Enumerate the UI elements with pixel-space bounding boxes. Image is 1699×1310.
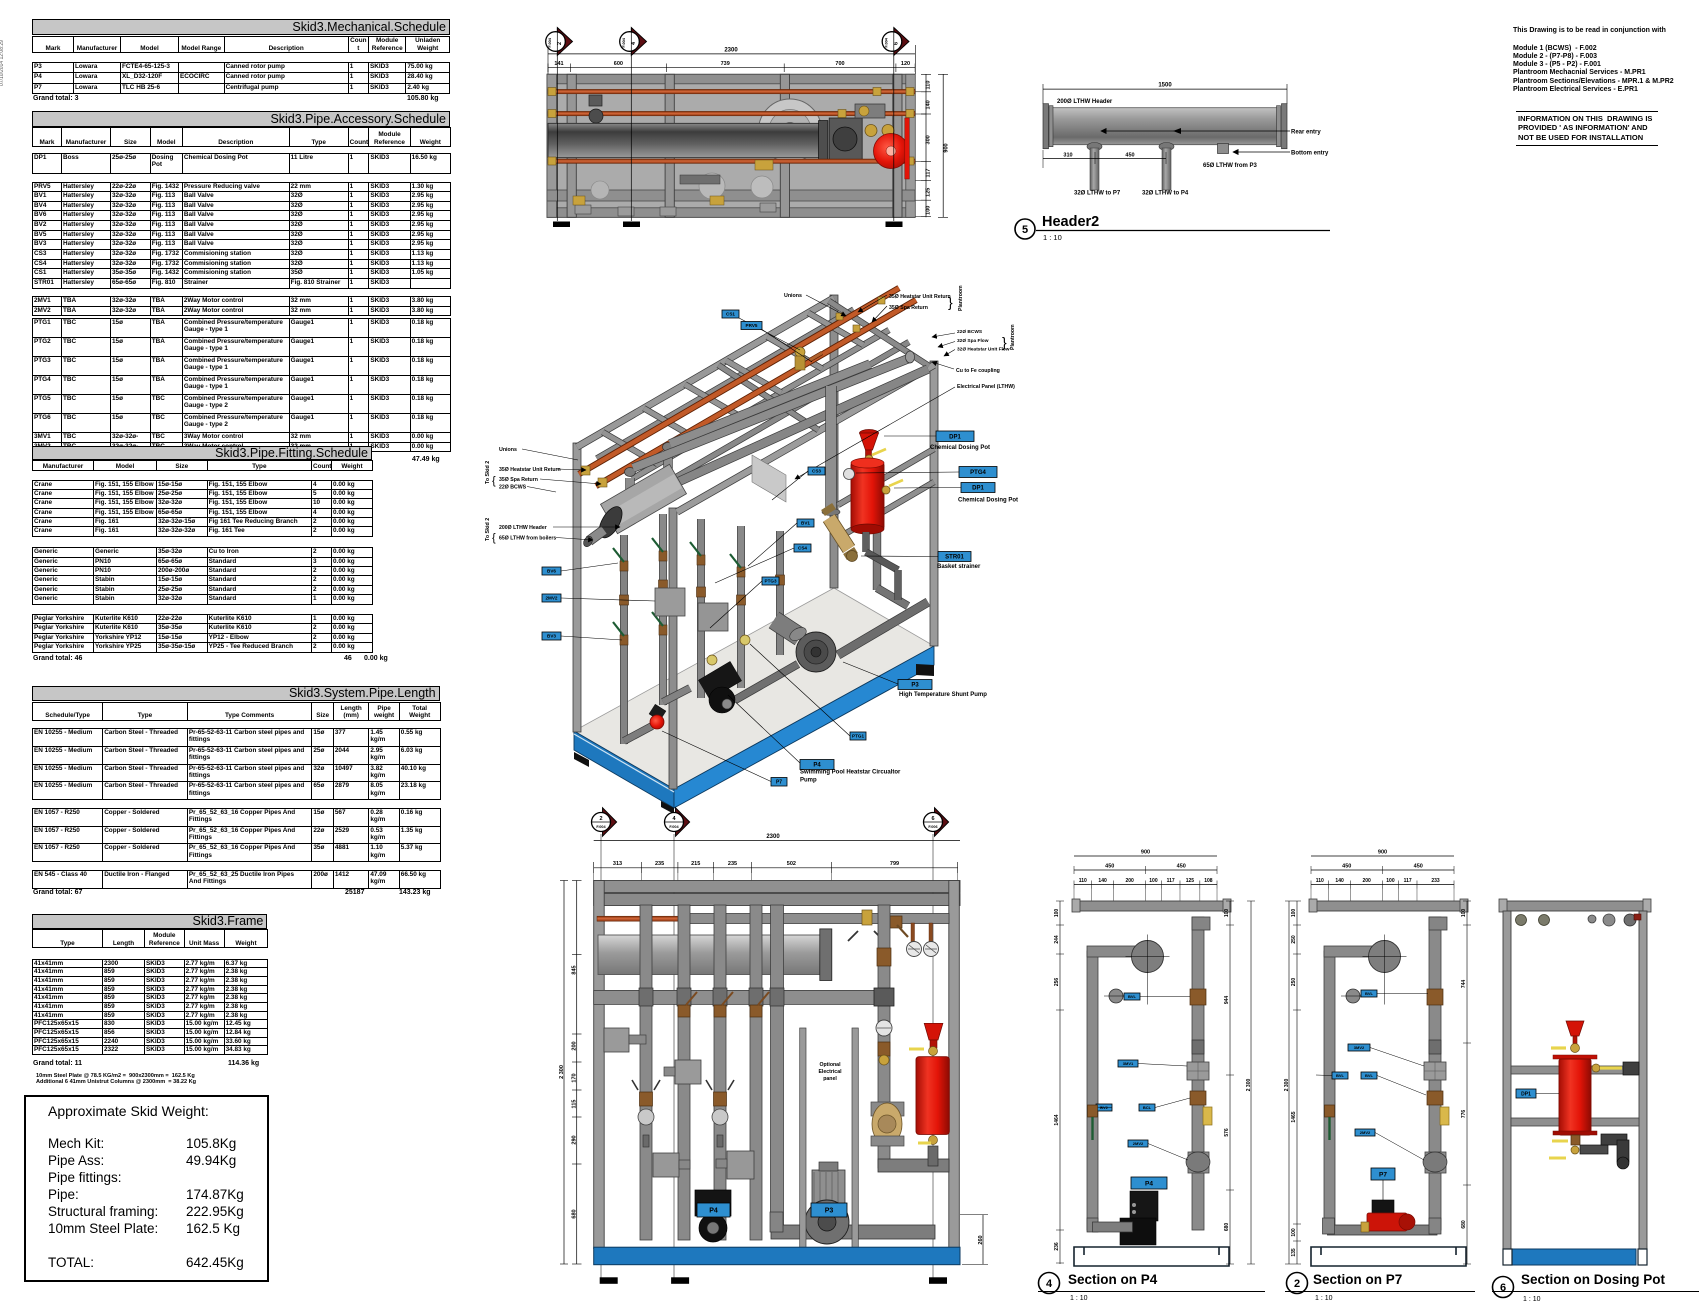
svg-text:F.004: F.004 bbox=[885, 37, 889, 47]
svg-text:CS3: CS3 bbox=[812, 469, 821, 474]
svg-text:{: { bbox=[492, 532, 496, 544]
svg-text:Plantroom: Plantroom bbox=[1010, 324, 1016, 350]
svg-text:600: 600 bbox=[614, 61, 623, 67]
svg-text:65Ø LTHW from boilers: 65Ø LTHW from boilers bbox=[499, 536, 556, 542]
svg-text:141: 141 bbox=[554, 61, 563, 67]
svg-text:Section on P7: Section on P7 bbox=[1313, 1272, 1402, 1287]
svg-text:2 300: 2 300 bbox=[559, 1065, 565, 1079]
svg-text:2 300: 2 300 bbox=[1284, 1079, 1290, 1092]
svg-text:140: 140 bbox=[1098, 878, 1107, 884]
svg-text:2MV2: 2MV2 bbox=[1133, 1141, 1144, 1146]
svg-text:1500: 1500 bbox=[1158, 83, 1172, 89]
svg-text:290: 290 bbox=[572, 1135, 578, 1144]
svg-text:100: 100 bbox=[1461, 909, 1467, 918]
svg-text:32Ø LTHW to P4: 32Ø LTHW to P4 bbox=[1142, 191, 1189, 197]
svg-text:944: 944 bbox=[1224, 996, 1230, 1005]
svg-text:700: 700 bbox=[835, 61, 844, 67]
svg-text:100: 100 bbox=[1224, 909, 1230, 918]
svg-text:35Ø Heatstar Unit Return: 35Ø Heatstar Unit Return bbox=[499, 467, 561, 473]
svg-text:F.004: F.004 bbox=[596, 825, 606, 829]
svg-text:P7: P7 bbox=[1379, 1171, 1387, 1178]
svg-text:310: 310 bbox=[1063, 153, 1072, 159]
svg-text:1 : 10: 1 : 10 bbox=[1523, 1296, 1541, 1303]
svg-text:4: 4 bbox=[1046, 1278, 1053, 1290]
svg-text:100: 100 bbox=[1149, 878, 1158, 884]
svg-text:256: 256 bbox=[1054, 978, 1060, 987]
svg-text:{: { bbox=[492, 475, 496, 487]
svg-text:P4: P4 bbox=[709, 1208, 718, 1215]
svg-text:200Ø LTHW Header: 200Ø LTHW Header bbox=[499, 525, 547, 531]
svg-text:115: 115 bbox=[572, 1100, 578, 1109]
svg-text:250: 250 bbox=[1291, 935, 1297, 944]
svg-text:776: 776 bbox=[1461, 1110, 1467, 1119]
svg-text:108: 108 bbox=[1204, 878, 1213, 884]
svg-text:}: } bbox=[1002, 334, 1007, 350]
svg-text:3MV2: 3MV2 bbox=[1354, 1045, 1365, 1050]
svg-text:235: 235 bbox=[728, 861, 737, 867]
svg-text:845: 845 bbox=[572, 965, 578, 974]
svg-text:235: 235 bbox=[655, 861, 664, 867]
svg-text:22Ø BCWS: 22Ø BCWS bbox=[957, 329, 983, 335]
svg-text:P3: P3 bbox=[825, 1208, 834, 1215]
svg-text:2MV2: 2MV2 bbox=[1360, 1130, 1371, 1135]
svg-text:Section on Dosing Pot: Section on Dosing Pot bbox=[1521, 1272, 1666, 1287]
svg-text:F.004: F.004 bbox=[669, 825, 679, 829]
svg-text:1464: 1464 bbox=[1054, 1114, 1060, 1125]
svg-text:F.006: F.006 bbox=[928, 825, 937, 829]
svg-text:Chemical Dosing Pot: Chemical Dosing Pot bbox=[958, 498, 1018, 504]
svg-text:140: 140 bbox=[1335, 878, 1344, 884]
svg-text:2 300: 2 300 bbox=[1246, 1079, 1252, 1092]
svg-text:1465: 1465 bbox=[1291, 1111, 1297, 1122]
svg-text:To Skid 2: To Skid 2 bbox=[485, 518, 491, 541]
svg-text:236: 236 bbox=[1054, 1242, 1060, 1251]
svg-text:DP1: DP1 bbox=[949, 434, 961, 440]
svg-text:BVL: BVL bbox=[1336, 1073, 1345, 1078]
svg-text:2: 2 bbox=[599, 816, 602, 822]
svg-text:BCL: BCL bbox=[1143, 1105, 1152, 1110]
svg-text:100: 100 bbox=[1054, 909, 1060, 918]
svg-text:BVL: BVL bbox=[1365, 991, 1374, 996]
svg-text:PRV5: PRV5 bbox=[746, 323, 758, 328]
svg-text:2: 2 bbox=[557, 42, 563, 45]
svg-text:Electrical: Electrical bbox=[818, 1069, 842, 1075]
svg-text:6: 6 bbox=[931, 816, 934, 822]
svg-text:35Ø Spa Return: 35Ø Spa Return bbox=[499, 477, 538, 483]
svg-text:Unions: Unions bbox=[499, 447, 517, 453]
svg-text:1 : 10: 1 : 10 bbox=[1043, 233, 1062, 242]
svg-text:680: 680 bbox=[572, 1209, 578, 1218]
svg-text:BV3: BV3 bbox=[547, 634, 556, 639]
svg-text:100: 100 bbox=[1291, 1228, 1297, 1237]
svg-text:200: 200 bbox=[572, 1041, 578, 1050]
svg-text:CS1: CS1 bbox=[726, 312, 735, 317]
svg-text:313: 313 bbox=[613, 861, 622, 867]
svg-text:PTG4: PTG4 bbox=[970, 470, 986, 476]
svg-text:Basket strainer: Basket strainer bbox=[937, 564, 981, 570]
svg-text:799: 799 bbox=[890, 861, 899, 867]
svg-text:6: 6 bbox=[894, 42, 900, 45]
svg-text:PTG1: PTG1 bbox=[852, 734, 864, 739]
svg-text:900: 900 bbox=[1141, 850, 1150, 856]
svg-text:Unions: Unions bbox=[784, 293, 802, 299]
svg-text:F.004: F.004 bbox=[548, 37, 552, 47]
svg-text:BVL: BVL bbox=[1365, 1073, 1374, 1078]
svg-text:Bottom entry: Bottom entry bbox=[1291, 151, 1329, 157]
svg-text:CS4: CS4 bbox=[798, 546, 807, 551]
svg-text:100: 100 bbox=[926, 206, 932, 215]
svg-text:}: } bbox=[948, 294, 953, 310]
svg-text:200Ø LTHW Header: 200Ø LTHW Header bbox=[1057, 99, 1113, 105]
svg-text:110: 110 bbox=[1316, 878, 1324, 884]
svg-text:450: 450 bbox=[1125, 153, 1134, 159]
svg-text:117: 117 bbox=[1167, 878, 1175, 884]
svg-text:Plantroom: Plantroom bbox=[958, 285, 964, 311]
svg-text:35Ø Spa Return: 35Ø Spa Return bbox=[889, 305, 928, 311]
svg-text:P3: P3 bbox=[911, 683, 919, 689]
svg-text:110: 110 bbox=[926, 81, 932, 90]
svg-text:BV6: BV6 bbox=[547, 569, 556, 574]
svg-text:35Ø Heatstar Unit Return: 35Ø Heatstar Unit Return bbox=[889, 294, 951, 300]
svg-text:1 : 10: 1 : 10 bbox=[1070, 1295, 1088, 1302]
svg-text:2300: 2300 bbox=[724, 48, 738, 54]
svg-text:2300: 2300 bbox=[766, 834, 780, 840]
svg-text:450: 450 bbox=[1105, 864, 1114, 870]
svg-text:900: 900 bbox=[1378, 850, 1387, 856]
svg-text:200: 200 bbox=[1125, 878, 1134, 884]
svg-text:PTG3: PTG3 bbox=[765, 579, 777, 584]
svg-text:2: 2 bbox=[1294, 1278, 1300, 1290]
svg-text:117: 117 bbox=[926, 169, 932, 178]
svg-text:100: 100 bbox=[1386, 878, 1395, 884]
svg-text:panel: panel bbox=[823, 1076, 837, 1082]
svg-text:215: 215 bbox=[691, 861, 700, 867]
svg-text:250: 250 bbox=[1291, 978, 1297, 987]
svg-text:65Ø LTHW from P3: 65Ø LTHW from P3 bbox=[1203, 163, 1258, 169]
svg-text:450: 450 bbox=[1414, 864, 1423, 870]
svg-text:900: 900 bbox=[944, 143, 950, 152]
svg-text:Header2: Header2 bbox=[1042, 214, 1099, 230]
svg-text:3MV1: 3MV1 bbox=[1123, 1061, 1134, 1066]
svg-text:STR01: STR01 bbox=[945, 555, 964, 561]
svg-text:Cu to Fe coupling: Cu to Fe coupling bbox=[956, 368, 1000, 374]
svg-text:739: 739 bbox=[721, 61, 730, 67]
svg-text:DP1: DP1 bbox=[1521, 1091, 1531, 1097]
svg-text:576: 576 bbox=[1224, 1128, 1230, 1137]
svg-text:125: 125 bbox=[1186, 878, 1195, 884]
svg-text:Chemical Dosing Pot: Chemical Dosing Pot bbox=[930, 445, 990, 451]
svg-text:To Skid 2: To Skid 2 bbox=[485, 461, 491, 484]
svg-text:6: 6 bbox=[1500, 1282, 1506, 1294]
svg-text:BV1: BV1 bbox=[801, 521, 810, 526]
svg-text:233: 233 bbox=[1431, 878, 1440, 884]
svg-text:P4: P4 bbox=[1145, 1180, 1153, 1187]
svg-text:Swimming Pool Heatstar Circual: Swimming Pool Heatstar Circualtor bbox=[800, 770, 901, 776]
svg-text:744: 744 bbox=[1461, 980, 1467, 989]
svg-text:Pump: Pump bbox=[800, 778, 817, 784]
svg-text:140: 140 bbox=[926, 100, 932, 109]
svg-text:300: 300 bbox=[926, 135, 932, 144]
svg-text:200: 200 bbox=[1362, 878, 1371, 884]
svg-text:450: 450 bbox=[1342, 864, 1351, 870]
svg-text:244: 244 bbox=[1054, 935, 1060, 944]
svg-text:170: 170 bbox=[572, 1073, 578, 1082]
svg-text:100: 100 bbox=[1291, 909, 1297, 918]
svg-text:P7: P7 bbox=[776, 780, 782, 786]
svg-text:260: 260 bbox=[978, 1235, 984, 1244]
svg-text:F.004: F.004 bbox=[622, 37, 626, 47]
svg-text:680: 680 bbox=[1224, 1223, 1230, 1232]
svg-text:Electrical Panel (LTHW): Electrical Panel (LTHW) bbox=[957, 384, 1015, 390]
svg-text:5: 5 bbox=[1022, 224, 1028, 236]
svg-text:135: 135 bbox=[1291, 1248, 1297, 1257]
svg-text:32Ø Spa Flow: 32Ø Spa Flow bbox=[957, 338, 989, 344]
svg-text:Section on P4: Section on P4 bbox=[1068, 1272, 1158, 1287]
svg-text:680: 680 bbox=[1461, 1220, 1467, 1229]
svg-text:P4: P4 bbox=[813, 763, 821, 769]
svg-text:22Ø BCWS: 22Ø BCWS bbox=[499, 485, 527, 491]
svg-text:125: 125 bbox=[926, 188, 932, 197]
svg-text:32Ø LTHW to P7: 32Ø LTHW to P7 bbox=[1074, 191, 1121, 197]
svg-text:502: 502 bbox=[787, 861, 796, 867]
svg-text:450: 450 bbox=[1177, 864, 1186, 870]
svg-text:120: 120 bbox=[901, 61, 910, 67]
svg-text:BVL: BVL bbox=[1128, 994, 1137, 999]
svg-text:117: 117 bbox=[1404, 878, 1412, 884]
svg-text:2MV2: 2MV2 bbox=[545, 596, 557, 601]
svg-text:110: 110 bbox=[1079, 878, 1087, 884]
svg-text:DP1: DP1 bbox=[972, 486, 984, 492]
svg-text:1 : 10: 1 : 10 bbox=[1315, 1295, 1333, 1302]
svg-text:High Temperature Shunt Pump: High Temperature Shunt Pump bbox=[899, 692, 987, 698]
svg-text:Rear entry: Rear entry bbox=[1291, 130, 1321, 136]
svg-text:Optional: Optional bbox=[819, 1062, 841, 1068]
